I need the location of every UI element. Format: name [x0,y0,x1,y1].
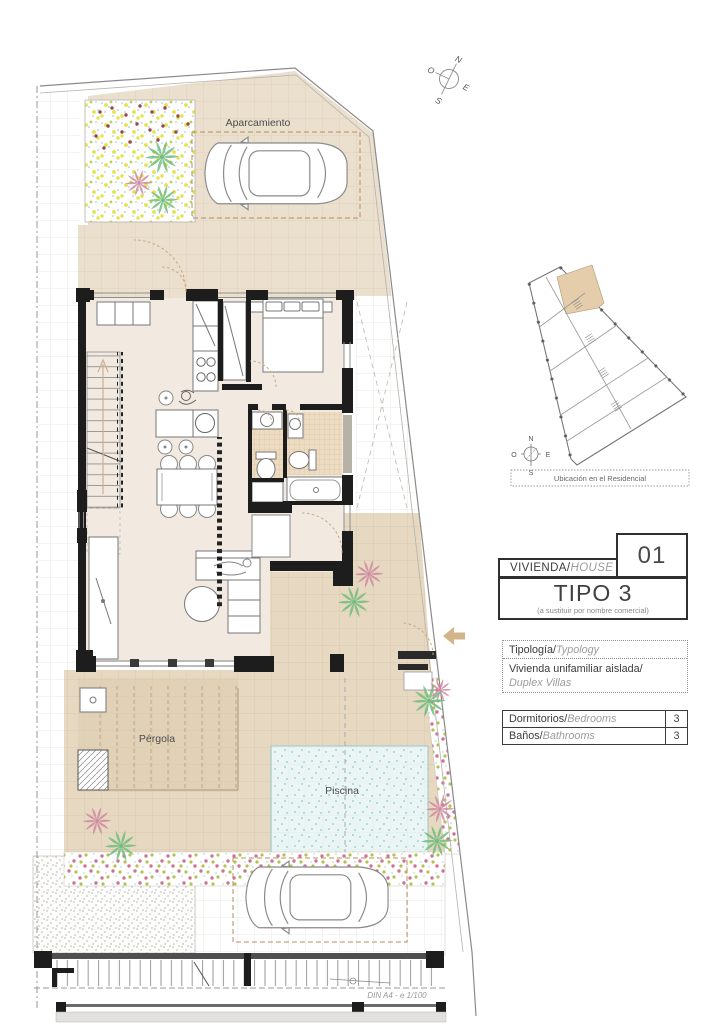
sofa-chaise [228,580,260,633]
map-caption: Ubicación en el Residencial [554,474,646,483]
bathrooms [252,412,343,503]
stair-railing [117,352,123,508]
glass-partition [216,437,223,609]
front-garden [85,100,195,222]
stats-row-bedrooms: Dormitorios/Bedrooms 3 [503,711,687,727]
typology-value: Vivienda unifamiliar aislada/ Duplex Vil… [503,659,687,693]
map-compass-o: O [511,452,517,459]
type-title: TIPO 3 [500,582,686,605]
toilet-2 [289,452,309,469]
scale-note: DIN A4 - e 1/100 [367,991,427,1000]
house-number-box: 01 [616,533,688,578]
bbq [78,750,108,790]
dining-set [157,456,217,518]
site-plan-drawing: Aparcamiento [0,0,724,1024]
entry-bench [97,302,150,325]
compass-e: E [461,82,471,94]
street-wall [34,951,446,1022]
stats-table: Dormitorios/Bedrooms 3 Baños/Bathrooms 3 [502,710,688,745]
car-top [205,137,347,210]
entrance-arrow-icon [443,627,465,645]
house-number: 01 [638,542,667,570]
bedrooms-count: 3 [665,711,687,727]
map-compass-s: S [529,470,534,477]
kitchen-sink [196,414,215,433]
floor-plan-sheet: Aparcamiento [0,0,724,1024]
bathrooms-count: 3 [665,728,687,744]
bath-closet [252,482,283,502]
stats-row-bathrooms: Baños/Bathrooms 3 [503,727,687,744]
kitchen-island [156,410,193,437]
car-bottom [246,861,388,934]
compass-n: N [454,53,465,65]
pool-label: Piscina [325,785,359,797]
map-compass-e: E [546,452,551,459]
type-box: TIPO 3 (a sustituir por nombre comercial… [498,577,688,620]
map-compass: N S O E [511,436,550,477]
parking-label: Aparcamiento [226,117,291,129]
coffee-table [185,587,220,622]
location-map: N S O E Ubicación en el Residencial [511,265,689,486]
washbasin [261,414,274,427]
compass-o: O [426,64,437,76]
washbasin-2 [290,419,301,430]
pergola-label: Pérgola [139,733,175,745]
bedroom [223,299,332,380]
house-label-es: VIVIENDA/ [510,562,570,574]
compass-main: N S O E [415,45,480,115]
house-label-en: HOUSE [570,562,613,574]
entry-closet [252,515,290,557]
dining-table [157,469,217,505]
map-compass-n: N [528,436,533,443]
compass-s: S [434,95,444,107]
typology-box: Tipología/Typology Vivienda unifamiliar … [502,640,688,693]
type-subtitle: (a sustituir por nombre comercial) [500,606,686,615]
toilet [257,459,275,480]
pool [271,746,428,853]
house-label-box: VIVIENDA/HOUSE [498,558,618,578]
bed [263,299,323,372]
typology-heading: Tipología/Typology [503,641,687,659]
tv-cabinet [89,537,118,659]
